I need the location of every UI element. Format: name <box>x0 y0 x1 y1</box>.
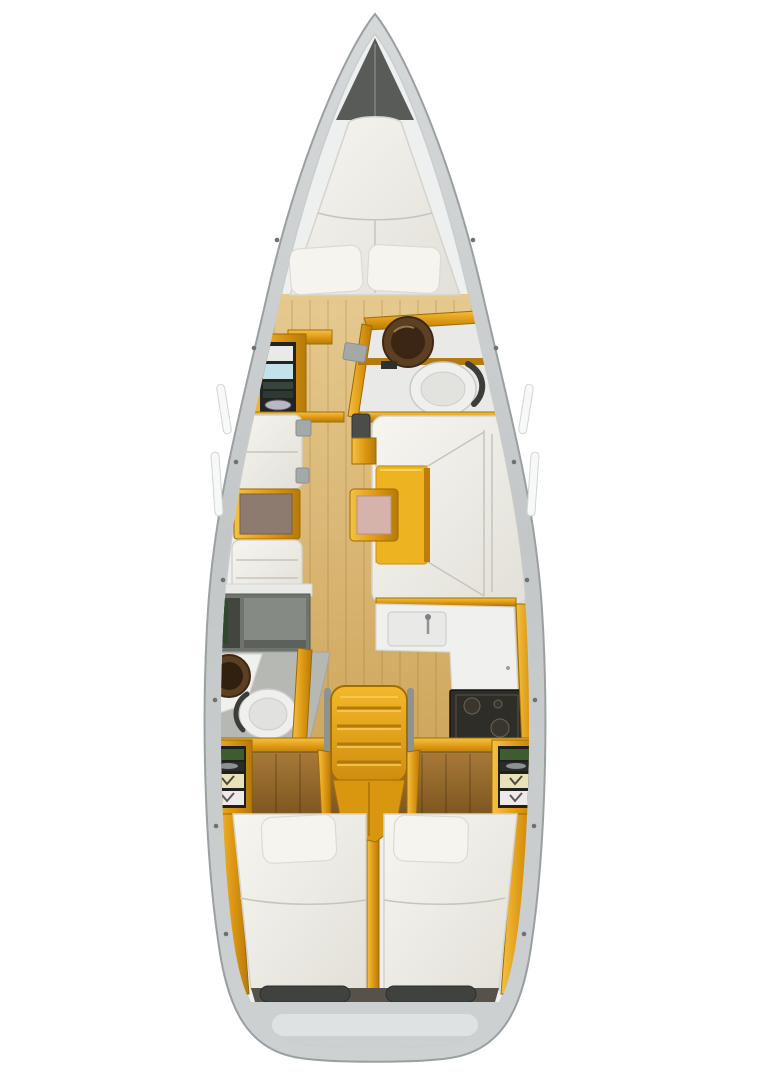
transom-step <box>272 1014 478 1036</box>
stanchion <box>522 932 527 937</box>
shelf-white-bin <box>500 791 532 805</box>
stanchion <box>532 824 537 829</box>
table-leaf-bracket-2 <box>296 468 309 483</box>
stanchion <box>221 578 226 583</box>
toilet-seat <box>249 698 287 730</box>
pillow <box>261 814 337 864</box>
stanchion <box>224 932 229 937</box>
shower-floor <box>244 598 306 646</box>
hull-window-starboard-fwd <box>518 384 534 435</box>
shelf-green-items <box>500 749 532 760</box>
fridge-handle <box>506 666 510 670</box>
cockpit-recess-starboard <box>386 986 476 1002</box>
dining-table-edge <box>424 468 430 562</box>
table-leaf-bracket-1 <box>296 420 311 436</box>
hull-window-starboard-mid <box>527 452 539 516</box>
side-cube-seat <box>352 438 376 464</box>
cocktail-table-top <box>240 494 292 534</box>
burner-2 <box>491 719 509 737</box>
stove-oven <box>450 690 524 744</box>
pillow-port <box>288 245 363 296</box>
faucet-base <box>425 614 431 620</box>
aft-cabin-port <box>233 814 366 990</box>
ladder-steps <box>331 686 407 782</box>
galley-sink <box>388 612 446 646</box>
counter-item <box>381 361 397 369</box>
stanchion <box>471 238 476 243</box>
stanchion <box>252 346 257 351</box>
stanchion <box>494 346 499 351</box>
stanchion <box>214 824 219 829</box>
boat-floor-plan-svg <box>0 0 762 1080</box>
pillow-starboard <box>367 244 441 294</box>
aft-cabin-starboard <box>384 814 517 990</box>
shelf-item-blue <box>263 364 293 379</box>
shelf-bottle <box>506 763 526 769</box>
stanchion <box>525 578 530 583</box>
stanchion <box>275 238 280 243</box>
stanchion <box>234 460 239 465</box>
shelf-slat-2 <box>263 391 293 398</box>
stanchion <box>512 460 517 465</box>
shelf-cream-bin <box>500 774 532 788</box>
burner-3 <box>494 700 502 708</box>
shelf-slat-1 <box>263 382 293 389</box>
shower-bench <box>244 640 306 648</box>
hull-window-port-mid <box>211 452 223 516</box>
pillow <box>393 815 469 864</box>
cabin-door-panel <box>343 342 367 362</box>
stanchion <box>213 698 218 703</box>
cockpit-recess-port <box>260 986 350 1002</box>
hull-window-port-fwd <box>216 384 232 435</box>
burner-1 <box>464 698 480 714</box>
stool-top <box>357 496 391 534</box>
stanchion <box>533 698 538 703</box>
boat-floor-plan <box>0 0 762 1080</box>
toilet-seat <box>421 372 465 406</box>
shelf-basin <box>265 400 291 410</box>
